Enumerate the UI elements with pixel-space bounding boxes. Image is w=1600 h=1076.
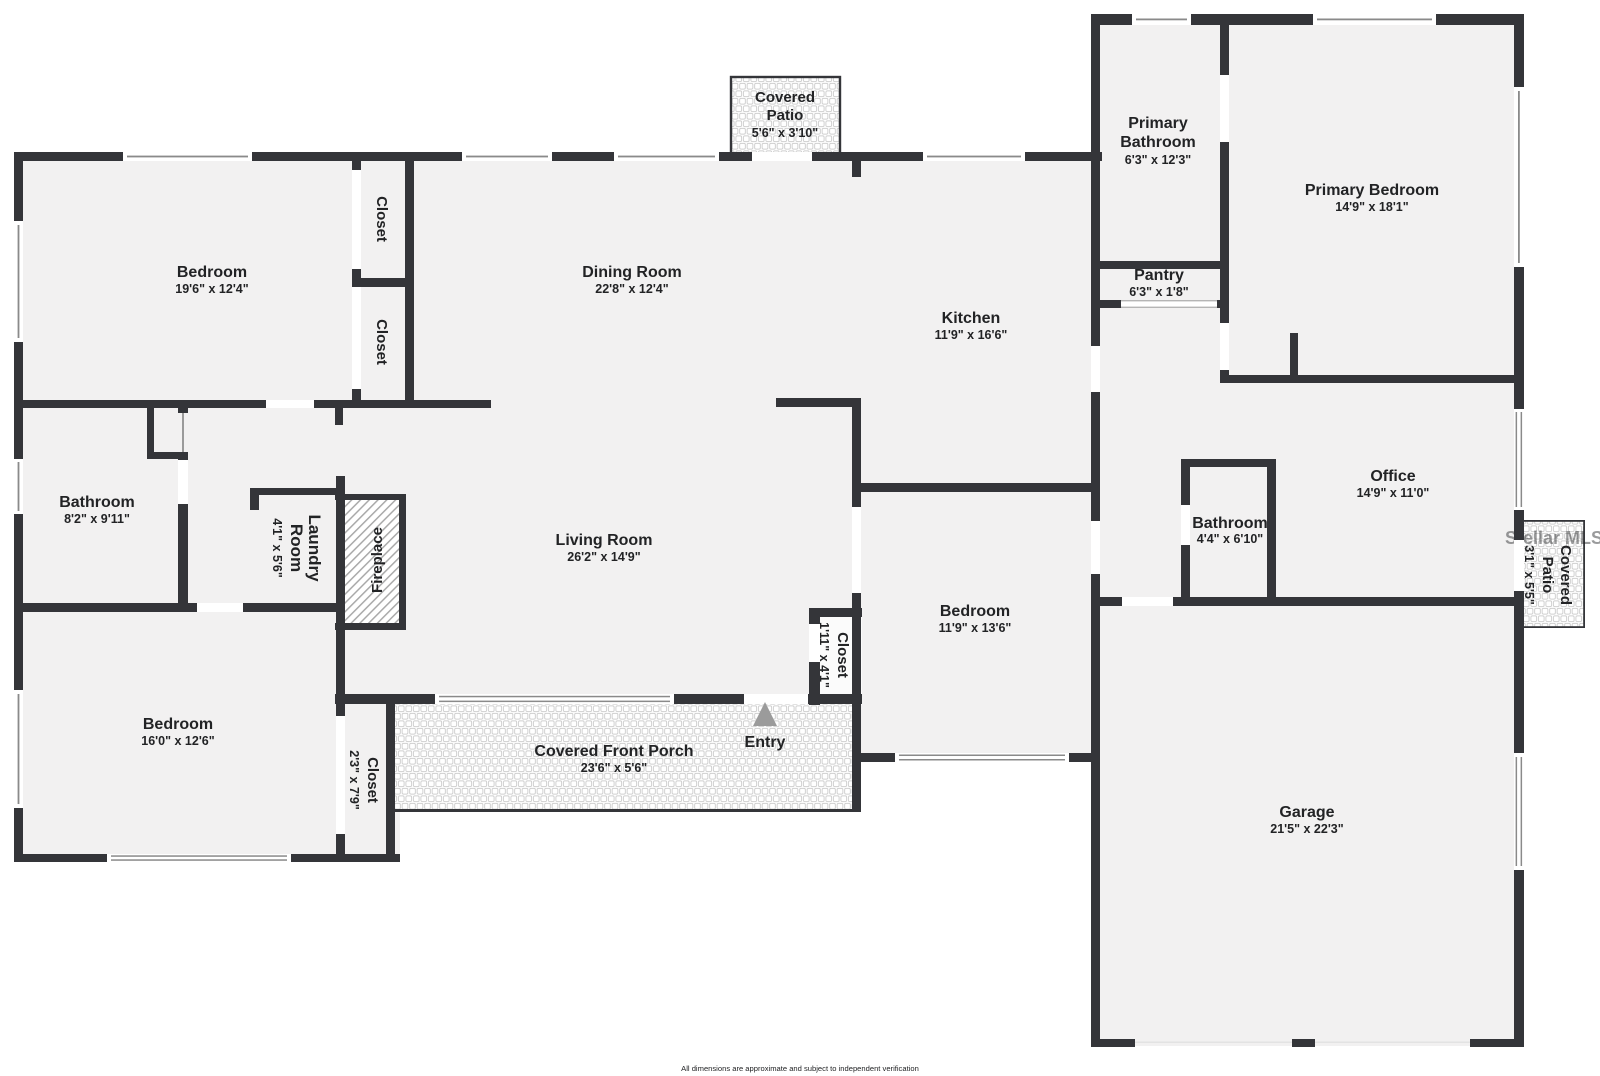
svg-text:1'11" x 4'1": 1'11" x 4'1" [817, 622, 831, 688]
svg-text:11'9" x 13'6": 11'9" x 13'6" [939, 621, 1012, 635]
svg-text:Bedroom: Bedroom [177, 264, 247, 281]
svg-text:4'4" x 6'10": 4'4" x 6'10" [1197, 532, 1264, 546]
svg-text:Fireplace: Fireplace [369, 527, 386, 593]
svg-text:Pantry: Pantry [1134, 267, 1184, 284]
svg-text:5'6" x 3'10": 5'6" x 3'10" [752, 126, 819, 140]
svg-text:Covered Front Porch: Covered Front Porch [534, 743, 693, 760]
svg-text:23'6" x 5'6": 23'6" x 5'6" [581, 761, 648, 775]
svg-text:Closet: Closet [373, 319, 390, 365]
svg-text:26'2" x 14'9": 26'2" x 14'9" [567, 550, 640, 564]
svg-text:Kitchen: Kitchen [942, 310, 1001, 327]
svg-text:Bedroom: Bedroom [940, 603, 1010, 620]
svg-text:Living Room: Living Room [556, 532, 653, 549]
svg-text:14'9" x 11'0": 14'9" x 11'0" [1357, 486, 1430, 500]
svg-text:16'0" x 12'6": 16'0" x 12'6" [141, 734, 214, 748]
svg-text:Closet: Closet [364, 757, 381, 803]
svg-text:Closet: Closet [373, 196, 390, 242]
svg-text:2'3" x 7'9": 2'3" x 7'9" [347, 750, 361, 810]
svg-text:Bathroom: Bathroom [1192, 515, 1268, 532]
svg-text:Room: Room [287, 524, 306, 572]
svg-text:Bathroom: Bathroom [1120, 134, 1196, 151]
svg-text:Bathroom: Bathroom [59, 494, 135, 511]
svg-text:Laundry: Laundry [305, 514, 324, 582]
svg-text:Garage: Garage [1279, 804, 1334, 821]
svg-text:All dimensions are approximate: All dimensions are approximate and subje… [681, 1064, 919, 1073]
svg-text:Office: Office [1370, 468, 1415, 485]
svg-text:6'3" x 12'3": 6'3" x 12'3" [1125, 153, 1192, 167]
svg-text:3'1" x 5'5": 3'1" x 5'5" [1522, 545, 1536, 605]
svg-text:Bedroom: Bedroom [143, 716, 213, 733]
svg-text:8'2" x 9'11": 8'2" x 9'11" [64, 512, 130, 526]
svg-text:19'6" x 12'4": 19'6" x 12'4" [175, 282, 248, 296]
svg-text:Patio: Patio [767, 107, 804, 124]
svg-text:Dining Room: Dining Room [582, 264, 682, 281]
svg-text:Patio: Patio [1539, 557, 1556, 594]
svg-text:6'3" x 1'8": 6'3" x 1'8" [1129, 285, 1189, 299]
svg-text:22'8" x 12'4": 22'8" x 12'4" [595, 282, 668, 296]
svg-text:Closet: Closet [834, 632, 851, 678]
svg-text:Primary Bedroom: Primary Bedroom [1305, 182, 1439, 199]
svg-text:Covered: Covered [755, 89, 815, 106]
svg-text:11'9" x 16'6": 11'9" x 16'6" [935, 328, 1008, 342]
svg-text:Primary: Primary [1128, 115, 1188, 132]
svg-text:4'1" x 5'6": 4'1" x 5'6" [270, 518, 284, 578]
svg-text:Covered: Covered [1557, 545, 1574, 605]
svg-text:14'9" x 18'1": 14'9" x 18'1" [1335, 200, 1408, 214]
svg-text:21'5" x 22'3": 21'5" x 22'3" [1270, 822, 1343, 836]
svg-text:Entry: Entry [745, 734, 786, 751]
